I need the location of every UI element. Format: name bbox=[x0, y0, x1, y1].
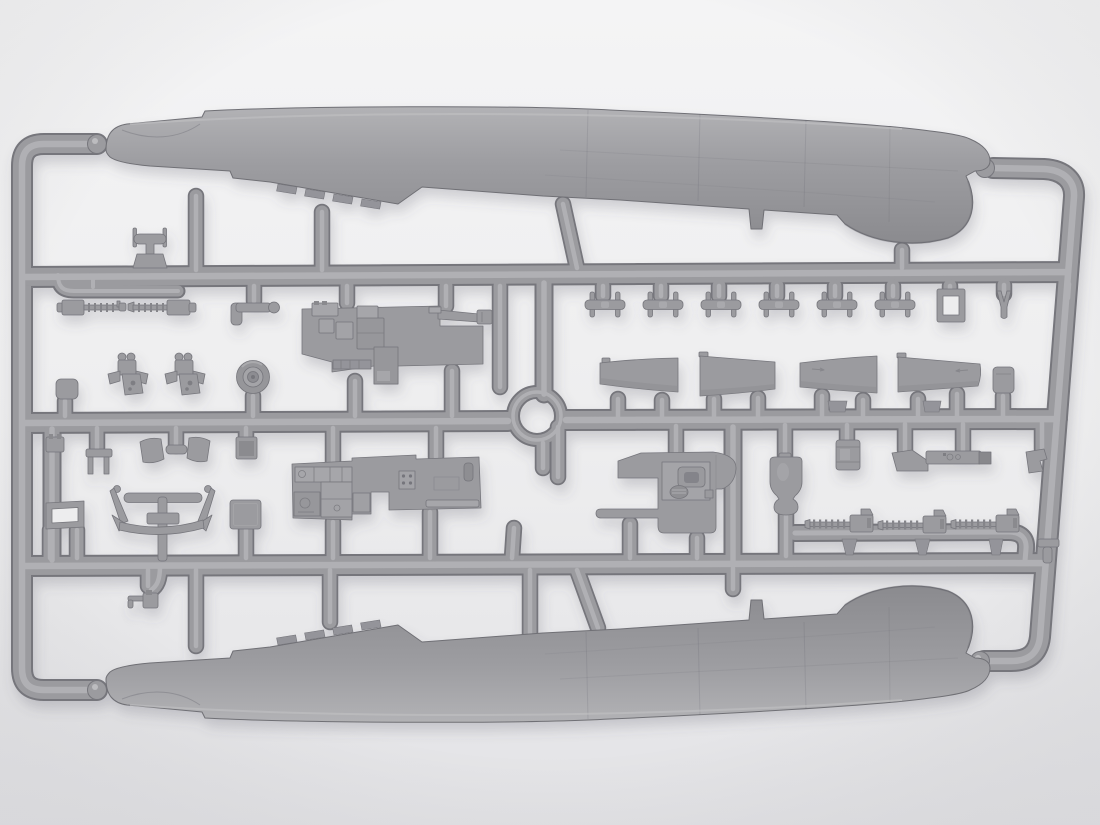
part-t-gate-base bbox=[166, 445, 187, 454]
photo-stage bbox=[0, 0, 1100, 825]
part-square-panel bbox=[230, 500, 261, 529]
part-canister bbox=[836, 440, 860, 470]
part-pad bbox=[56, 379, 78, 399]
part-cowl-panel-a bbox=[140, 438, 164, 463]
part-blade-3 bbox=[800, 356, 877, 393]
part-bell-fairing bbox=[770, 453, 802, 515]
gate-ball bbox=[88, 135, 107, 154]
part-window-frame bbox=[46, 501, 84, 529]
floor-gun-muzzle bbox=[477, 310, 492, 324]
part-square-frame bbox=[937, 289, 965, 322]
part-main-wheel bbox=[237, 361, 270, 394]
part-small-box bbox=[993, 367, 1014, 393]
part-tiny-box bbox=[46, 434, 64, 452]
sprue-photo bbox=[0, 0, 1100, 825]
part-open-box bbox=[236, 437, 257, 459]
part-cowl-panel-b bbox=[187, 437, 210, 462]
gate-ball bbox=[88, 681, 107, 700]
